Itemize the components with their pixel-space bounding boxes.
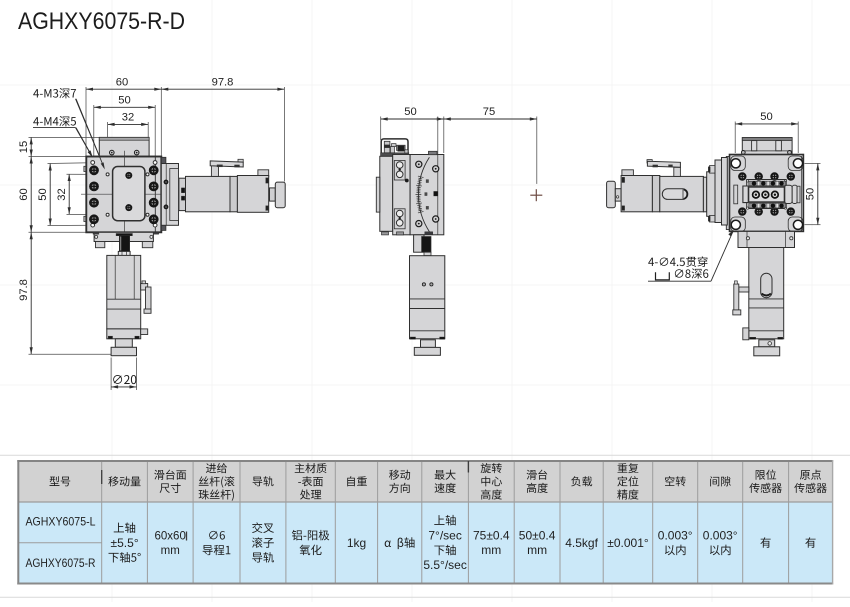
svg-text:AGHXY6075-L: AGHXY6075-L <box>26 515 96 528</box>
svg-text:60x60: 60x60 <box>155 531 186 543</box>
svg-text:50: 50 <box>805 188 817 200</box>
svg-text:50: 50 <box>760 111 772 123</box>
svg-text:15: 15 <box>18 141 30 153</box>
svg-text:32: 32 <box>56 188 68 200</box>
svg-text:75: 75 <box>483 106 495 118</box>
svg-text:5.5°/sec: 5.5°/sec <box>423 558 467 572</box>
svg-text:50: 50 <box>118 95 130 107</box>
svg-text:4.5kgf: 4.5kgf <box>565 536 598 550</box>
svg-text:50: 50 <box>37 188 49 200</box>
svg-text:AGHXY6075-R: AGHXY6075-R <box>26 557 96 570</box>
svg-text:mm: mm <box>161 545 180 557</box>
svg-text:7°/sec: 7°/sec <box>428 528 461 542</box>
svg-text:32: 32 <box>122 112 134 124</box>
svg-text:mm: mm <box>481 543 501 557</box>
svg-text:50: 50 <box>404 106 416 118</box>
svg-text:60: 60 <box>116 77 128 89</box>
svg-text:75±0.4: 75±0.4 <box>473 529 510 543</box>
svg-text:mm: mm <box>527 543 547 557</box>
svg-text:0.003°: 0.003° <box>658 529 693 543</box>
svg-text:AGHXY6075-R-D: AGHXY6075-R-D <box>18 8 185 35</box>
svg-text:97.8: 97.8 <box>18 279 30 301</box>
svg-text:50±0.4: 50±0.4 <box>519 529 556 543</box>
svg-text:0.003°: 0.003° <box>703 529 738 543</box>
svg-text:97.8: 97.8 <box>212 77 234 89</box>
svg-text:1kg: 1kg <box>347 536 366 550</box>
svg-text:±0.001°: ±0.001° <box>607 536 649 550</box>
svg-text:60: 60 <box>18 188 30 200</box>
svg-text:±5.5°: ±5.5° <box>111 536 139 550</box>
